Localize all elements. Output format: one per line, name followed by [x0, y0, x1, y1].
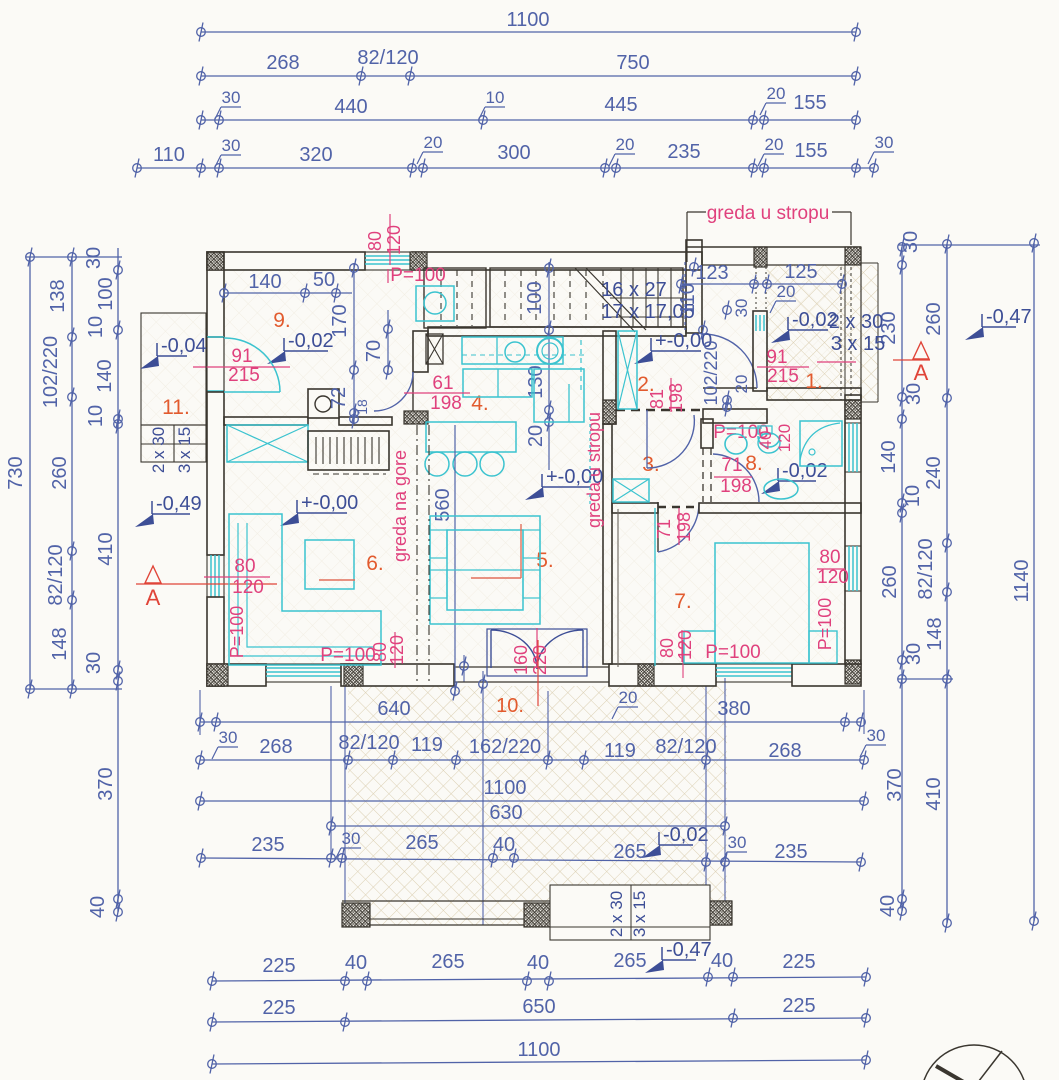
svg-text:198: 198: [430, 393, 462, 414]
svg-text:71: 71: [721, 455, 742, 476]
svg-text:greda u stropu: greda u stropu: [584, 412, 604, 528]
svg-text:119: 119: [604, 740, 636, 762]
svg-text:268: 268: [768, 740, 801, 762]
svg-text:265: 265: [613, 841, 646, 863]
svg-text:71: 71: [654, 519, 674, 539]
svg-text:82/120: 82/120: [357, 47, 418, 69]
svg-text:7.: 7.: [674, 590, 692, 613]
svg-text:+-0,00: +-0,00: [301, 492, 358, 514]
svg-text:3.: 3.: [642, 453, 660, 476]
svg-text:11.: 11.: [162, 396, 190, 419]
svg-text:110: 110: [153, 144, 185, 166]
svg-text:30: 30: [222, 136, 241, 155]
svg-text:100: 100: [95, 277, 117, 310]
svg-text:265: 265: [405, 832, 438, 854]
svg-text:215: 215: [228, 365, 260, 386]
svg-text:265: 265: [613, 950, 646, 972]
svg-text:102/220: 102/220: [40, 336, 62, 408]
svg-text:120: 120: [817, 567, 849, 588]
svg-text:4.: 4.: [471, 392, 489, 415]
svg-text:3 x 15: 3 x 15: [175, 427, 194, 473]
svg-text:P=100: P=100: [390, 265, 445, 286]
svg-text:3 x 15: 3 x 15: [831, 333, 885, 355]
svg-text:82/120: 82/120: [655, 736, 716, 758]
svg-text:10: 10: [85, 316, 107, 338]
svg-text:410: 410: [923, 777, 945, 810]
svg-text:198: 198: [674, 512, 694, 542]
svg-text:370: 370: [95, 767, 117, 800]
svg-text:30: 30: [900, 231, 922, 253]
svg-text:120: 120: [384, 225, 404, 255]
svg-text:40: 40: [493, 834, 515, 856]
svg-text:30: 30: [903, 383, 925, 405]
svg-text:8.: 8.: [745, 452, 763, 475]
svg-text:650: 650: [522, 996, 555, 1018]
svg-text:18: 18: [354, 399, 370, 415]
svg-text:80: 80: [819, 547, 840, 568]
svg-text:-0,47: -0,47: [666, 939, 712, 961]
svg-text:170: 170: [329, 304, 351, 337]
svg-text:-0,02: -0,02: [782, 460, 828, 482]
svg-text:225: 225: [262, 997, 295, 1019]
svg-text:235: 235: [774, 841, 807, 863]
svg-text:20: 20: [777, 282, 796, 301]
svg-text:10: 10: [902, 485, 924, 507]
svg-text:100: 100: [524, 281, 546, 314]
svg-text:750: 750: [616, 52, 649, 74]
svg-text:-0,49: -0,49: [156, 493, 202, 515]
svg-text:81: 81: [647, 389, 667, 409]
svg-text:40: 40: [877, 895, 899, 917]
svg-text:40: 40: [87, 896, 109, 918]
svg-text:70: 70: [363, 340, 385, 362]
svg-text:1140: 1140: [1011, 559, 1033, 602]
svg-text:235: 235: [251, 834, 284, 856]
svg-text:1100: 1100: [506, 9, 549, 31]
svg-text:130: 130: [525, 365, 547, 398]
svg-text:P=100: P=100: [320, 645, 375, 666]
svg-text:20: 20: [767, 84, 786, 103]
svg-text:140: 140: [94, 359, 116, 392]
svg-text:-0,02: -0,02: [663, 824, 709, 846]
svg-text:82/120: 82/120: [45, 544, 67, 605]
svg-text:40: 40: [711, 950, 733, 972]
svg-text:140: 140: [878, 440, 900, 473]
svg-text:10: 10: [85, 405, 107, 427]
svg-text:61: 61: [432, 373, 453, 394]
svg-text:120: 120: [232, 577, 264, 598]
svg-text:268: 268: [259, 736, 292, 758]
svg-text:6.: 6.: [366, 552, 384, 575]
svg-text:30: 30: [83, 247, 105, 269]
svg-text:102/220: 102/220: [701, 340, 721, 405]
svg-text:300: 300: [497, 142, 530, 164]
svg-text:3 x 15: 3 x 15: [630, 891, 649, 937]
svg-text:268: 268: [266, 52, 299, 74]
svg-text:225: 225: [782, 951, 815, 973]
svg-text:2 x 30: 2 x 30: [829, 311, 883, 333]
svg-text:148: 148: [49, 627, 71, 660]
svg-text:A: A: [146, 585, 161, 610]
svg-text:138: 138: [47, 279, 69, 312]
svg-text:P=100: P=100: [815, 598, 835, 651]
svg-text:215: 215: [767, 366, 799, 387]
svg-text:40: 40: [527, 952, 549, 974]
svg-text:225: 225: [262, 955, 295, 977]
svg-text:120: 120: [675, 630, 695, 660]
svg-text:380: 380: [717, 698, 750, 720]
svg-text:30: 30: [867, 726, 886, 745]
svg-text:greda u stropu: greda u stropu: [707, 203, 830, 224]
svg-text:162/220: 162/220: [469, 736, 541, 758]
svg-text:20: 20: [616, 135, 635, 154]
svg-text:20: 20: [525, 425, 547, 447]
svg-text:P=100: P=100: [705, 642, 760, 663]
svg-text:80: 80: [365, 231, 385, 251]
svg-text:30: 30: [222, 88, 241, 107]
svg-text:119: 119: [411, 734, 443, 756]
svg-text:30: 30: [903, 643, 925, 665]
svg-text:1.: 1.: [805, 370, 823, 393]
svg-text:10.: 10.: [496, 695, 524, 717]
svg-text:30: 30: [732, 299, 751, 318]
svg-text:155: 155: [793, 92, 826, 114]
svg-text:30: 30: [728, 833, 747, 852]
svg-text:greda na gore: greda na gore: [390, 450, 410, 562]
svg-text:P=100: P=100: [227, 606, 247, 659]
svg-text:20: 20: [732, 375, 751, 394]
svg-text:140: 140: [248, 271, 281, 293]
svg-text:260: 260: [879, 565, 901, 598]
svg-text:235: 235: [667, 141, 700, 163]
svg-text:-0,47: -0,47: [986, 306, 1032, 328]
svg-text:2 x 30: 2 x 30: [607, 891, 626, 937]
svg-text:225: 225: [782, 995, 815, 1017]
svg-text:155: 155: [794, 140, 827, 162]
svg-text:30: 30: [219, 728, 238, 747]
svg-text:9.: 9.: [273, 309, 291, 332]
svg-text:20: 20: [424, 133, 443, 152]
svg-text:10: 10: [486, 88, 505, 107]
svg-text:410: 410: [95, 532, 117, 565]
svg-text:320: 320: [299, 144, 332, 166]
svg-text:1100: 1100: [483, 777, 526, 799]
svg-text:50: 50: [313, 269, 335, 291]
svg-text:370: 370: [884, 768, 906, 801]
svg-text:440: 440: [334, 96, 367, 118]
svg-text:630: 630: [489, 802, 522, 824]
svg-text:220: 220: [530, 645, 550, 675]
svg-text:198: 198: [720, 476, 752, 497]
svg-text:260: 260: [49, 456, 71, 489]
svg-text:30: 30: [875, 133, 894, 152]
svg-text:80: 80: [657, 638, 677, 658]
svg-text:82/120: 82/120: [338, 732, 399, 754]
svg-text:91: 91: [766, 347, 787, 368]
svg-text:123: 123: [695, 262, 728, 284]
svg-text:148: 148: [924, 617, 946, 650]
svg-text:730: 730: [5, 456, 27, 489]
svg-text:240: 240: [923, 456, 945, 489]
svg-text:120: 120: [775, 424, 794, 452]
svg-text:40: 40: [345, 952, 367, 974]
svg-text:260: 260: [923, 302, 945, 335]
svg-text:125: 125: [784, 261, 817, 283]
svg-text:445: 445: [604, 94, 637, 116]
svg-text:72: 72: [328, 387, 350, 409]
svg-text:265: 265: [431, 951, 464, 973]
svg-text:160: 160: [511, 645, 531, 675]
svg-text:30: 30: [342, 829, 361, 848]
svg-text:40: 40: [756, 431, 775, 450]
svg-text:91: 91: [231, 346, 252, 367]
svg-text:198: 198: [666, 383, 686, 413]
svg-text:1100: 1100: [517, 1039, 560, 1061]
svg-text:640: 640: [377, 698, 410, 720]
svg-text:-0,02: -0,02: [288, 330, 334, 352]
svg-text:20: 20: [765, 135, 784, 154]
svg-text:2 x 30: 2 x 30: [149, 427, 168, 473]
svg-text:-0,04: -0,04: [161, 335, 207, 357]
svg-text:82/120: 82/120: [915, 538, 937, 599]
svg-text:5.: 5.: [536, 549, 554, 572]
svg-text:120: 120: [387, 635, 407, 665]
svg-text:20: 20: [619, 688, 638, 707]
svg-text:80: 80: [234, 556, 255, 577]
svg-text:A: A: [914, 360, 929, 385]
svg-text:30: 30: [83, 652, 105, 674]
svg-text:16 x 27: 16 x 27: [601, 279, 667, 301]
